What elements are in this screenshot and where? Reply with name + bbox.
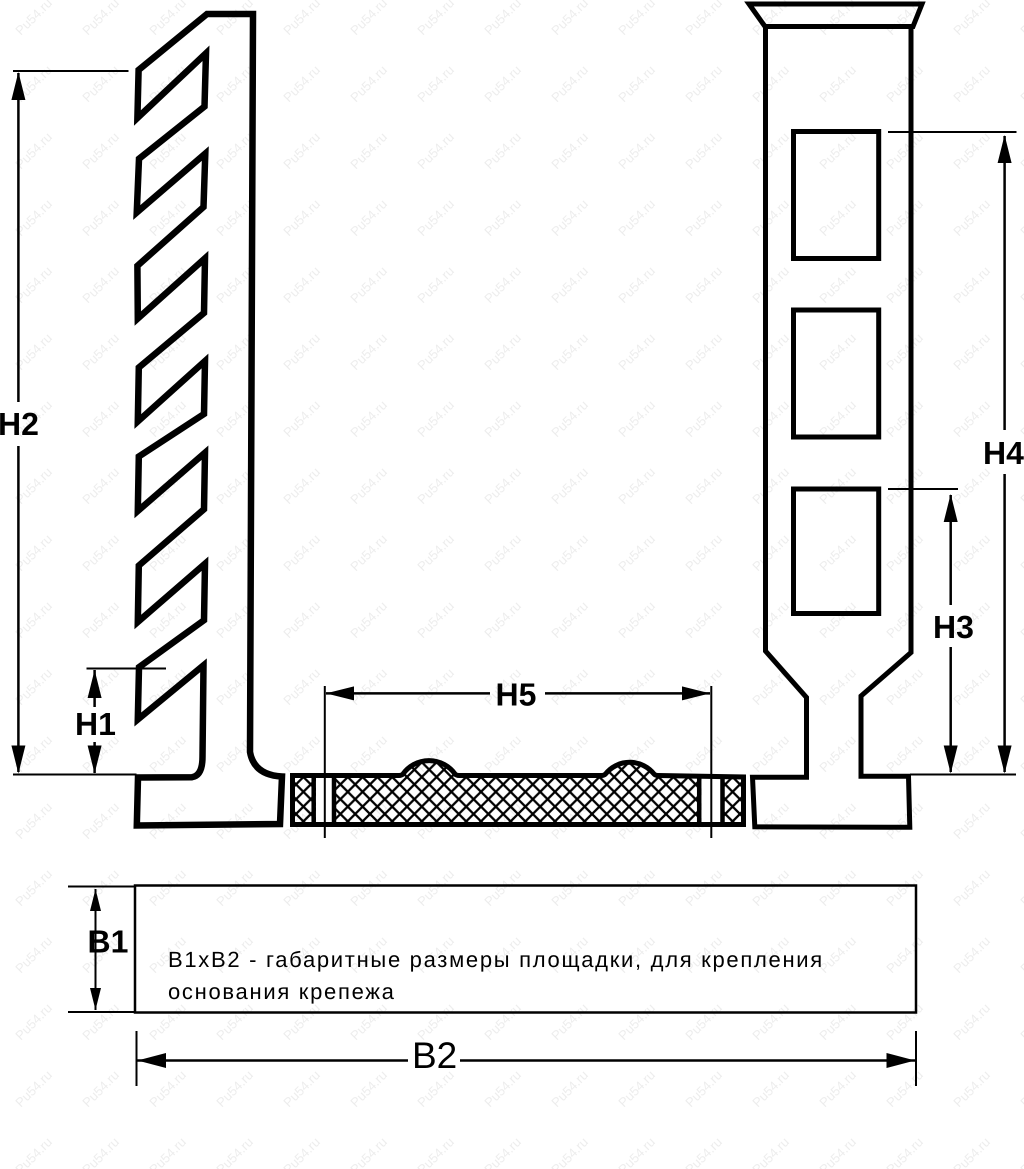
svg-text:H5: H5 (496, 677, 537, 713)
svg-text:B2: B2 (412, 1035, 457, 1076)
svg-text:B1: B1 (88, 924, 129, 960)
svg-text:основания крепежа: основания крепежа (168, 979, 396, 1004)
svg-text:H4: H4 (983, 435, 1024, 471)
svg-text:H2: H2 (0, 406, 39, 442)
svg-text:H3: H3 (933, 609, 974, 645)
svg-text:H1: H1 (75, 706, 116, 742)
svg-text:В1хВ2 - габаритные размеры пло: В1хВ2 - габаритные размеры площадки, для… (168, 947, 824, 972)
